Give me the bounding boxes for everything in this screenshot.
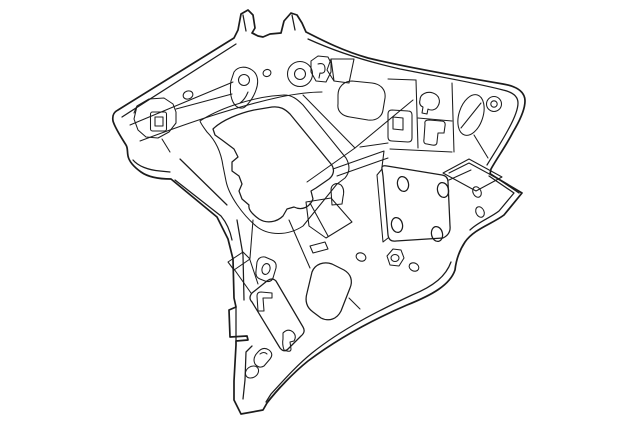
- oval-vent: [453, 91, 489, 138]
- lower-blob: [306, 263, 351, 320]
- corner-grommet: [487, 97, 502, 112]
- window-flange: [200, 95, 349, 234]
- rail-hole: [262, 68, 272, 77]
- hook-bracket: [311, 56, 331, 82]
- u-tab: [331, 184, 344, 205]
- small-hole: [355, 251, 367, 262]
- g-slot: [424, 120, 445, 145]
- mounting-plate: [382, 166, 450, 241]
- rounded-pad: [338, 81, 385, 120]
- window-opening-group: [200, 95, 349, 268]
- small-hole: [408, 261, 420, 272]
- l-slot: [257, 292, 272, 311]
- part-line-drawing: [0, 0, 640, 425]
- plate-hole: [430, 226, 444, 243]
- lower-leg-group: [228, 252, 360, 401]
- trapezoid-bracket: [306, 198, 352, 238]
- slotted-pad: [250, 279, 304, 351]
- plate-hole: [396, 176, 410, 193]
- part-outline: [113, 10, 525, 414]
- diagram-canvas: [0, 0, 640, 425]
- hex-nut: [387, 249, 404, 266]
- flange-hole: [474, 205, 486, 218]
- leg-hardware: [243, 348, 272, 380]
- spiral-slot: [420, 92, 440, 114]
- oval-ring: [256, 257, 276, 282]
- mounting-plate-group: [355, 166, 486, 273]
- top-rail-structure: [130, 56, 354, 152]
- plate-hole: [390, 217, 404, 234]
- window-opening: [213, 107, 333, 222]
- square-bracket-ring: [388, 110, 412, 142]
- flange-hole: [471, 185, 483, 198]
- grommet-ring: [288, 62, 313, 87]
